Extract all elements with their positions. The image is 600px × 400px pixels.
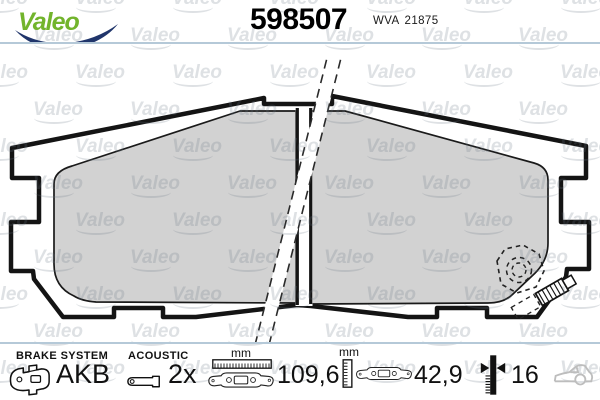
wva-label: WVA [373, 15, 400, 27]
pad-rear-view-icon [207, 370, 275, 390]
acoustic-count: 2x [168, 359, 197, 390]
spec-bar: BRAKE SYSTEM AKB ACOUSTIC 2x mm [0, 344, 600, 400]
width-unit: mm [231, 346, 251, 360]
wva-number: 21875 [405, 15, 439, 27]
thickness-gauge-icon [478, 355, 508, 395]
wear-sensor-icon [126, 374, 164, 389]
caliper-icon [6, 360, 52, 397]
header: Valeo 598507 WVA21875 [0, 0, 600, 43]
pad-width-value: 109,6 [277, 361, 340, 390]
pad-thickness-value: 16 [511, 361, 539, 390]
car-icon [552, 362, 594, 386]
ruler-vertical-icon [342, 359, 353, 388]
part-number: 598507 [250, 3, 347, 37]
ruler-horizontal-icon [211, 359, 273, 369]
header-divider [0, 42, 600, 44]
pad-rear-view-icon-small [355, 364, 413, 383]
brake-pad-technical-drawing [0, 43, 600, 343]
valeo-logo: Valeo [10, 5, 125, 43]
valeo-logo-text: Valeo [18, 8, 80, 36]
wva-reference: WVA21875 [373, 15, 444, 27]
brake-pad-product-sheet: Valeo 598507 WVA21875 BRAKE SYSTEM AKB A… [0, 0, 600, 400]
height-unit: mm [339, 345, 359, 359]
pad-height-value: 42,9 [414, 361, 463, 390]
brake-system-code: AKB [56, 359, 110, 390]
